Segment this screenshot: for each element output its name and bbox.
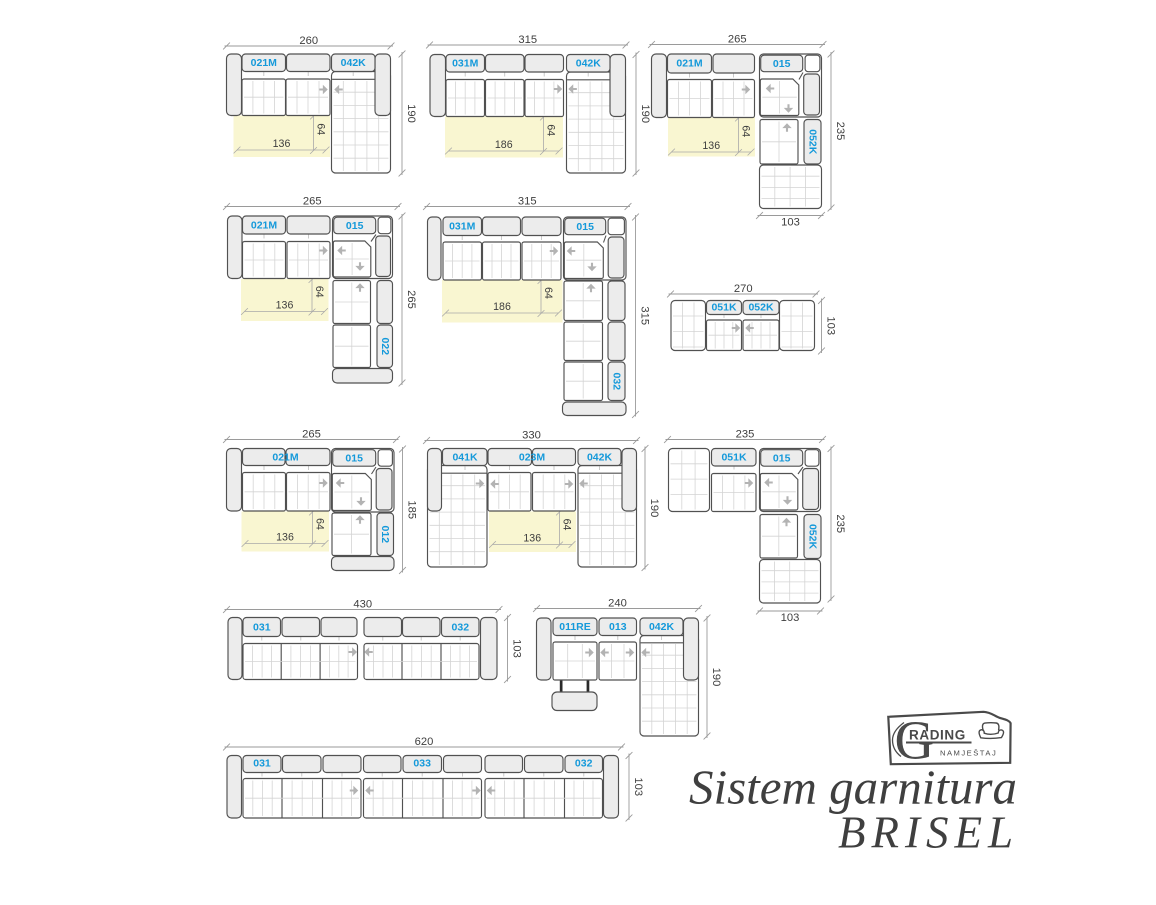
svg-text:051K: 051K	[721, 452, 747, 464]
svg-text:64: 64	[313, 286, 325, 298]
svg-text:103: 103	[632, 777, 644, 796]
svg-text:042K: 042K	[341, 57, 367, 69]
svg-text:052K: 052K	[748, 302, 774, 314]
svg-text:032: 032	[452, 621, 470, 633]
svg-text:015: 015	[773, 58, 791, 70]
svg-text:330: 330	[522, 430, 541, 442]
svg-text:103: 103	[781, 612, 800, 624]
svg-text:64: 64	[542, 287, 554, 299]
svg-text:015: 015	[773, 452, 791, 464]
svg-text:64: 64	[740, 125, 752, 137]
svg-text:042K: 042K	[587, 452, 613, 464]
svg-text:042K: 042K	[576, 58, 602, 70]
svg-text:136: 136	[276, 300, 294, 312]
svg-text:015: 015	[576, 221, 594, 233]
svg-text:051K: 051K	[711, 302, 737, 314]
svg-text:235: 235	[736, 429, 755, 441]
svg-text:031M: 031M	[449, 221, 476, 233]
svg-text:430: 430	[353, 599, 372, 611]
svg-text:052K: 052K	[807, 129, 819, 155]
svg-text:620: 620	[415, 736, 434, 748]
svg-text:021M: 021M	[251, 220, 278, 232]
svg-text:032: 032	[575, 758, 593, 770]
svg-text:64: 64	[561, 519, 573, 531]
svg-text:190: 190	[648, 499, 660, 518]
svg-text:190: 190	[710, 668, 722, 687]
svg-text:315: 315	[639, 306, 651, 325]
svg-text:015: 015	[346, 220, 364, 232]
svg-text:042K: 042K	[649, 621, 675, 633]
svg-text:64: 64	[545, 124, 557, 136]
svg-text:64: 64	[315, 123, 327, 135]
svg-text:103: 103	[781, 217, 800, 229]
svg-text:021M: 021M	[272, 452, 299, 464]
svg-text:136: 136	[702, 140, 720, 152]
svg-text:021M: 021M	[251, 57, 278, 69]
svg-text:RADING: RADING	[909, 728, 966, 743]
svg-text:015: 015	[345, 452, 363, 464]
svg-text:103: 103	[825, 316, 837, 335]
svg-text:136: 136	[523, 533, 541, 545]
svg-text:265: 265	[303, 196, 322, 208]
svg-text:315: 315	[518, 34, 537, 46]
svg-text:023M: 023M	[519, 452, 546, 464]
svg-text:BRISEL: BRISEL	[838, 808, 1019, 858]
svg-text:Sistem garnitura: Sistem garnitura	[689, 760, 1017, 815]
svg-text:NAMJEŠTAJ: NAMJEŠTAJ	[940, 749, 997, 758]
svg-text:031M: 031M	[452, 58, 479, 70]
svg-text:022: 022	[379, 338, 391, 356]
svg-text:013: 013	[609, 621, 627, 633]
svg-text:052K: 052K	[807, 524, 819, 550]
svg-text:235: 235	[834, 122, 846, 141]
svg-text:031: 031	[253, 758, 271, 770]
svg-text:031: 031	[253, 621, 271, 633]
svg-text:190: 190	[405, 104, 417, 123]
svg-text:265: 265	[302, 429, 321, 441]
svg-text:103: 103	[511, 639, 523, 658]
svg-text:041K: 041K	[452, 452, 478, 464]
svg-text:315: 315	[518, 196, 537, 208]
svg-text:136: 136	[273, 138, 291, 150]
svg-text:011RE: 011RE	[559, 621, 591, 633]
svg-text:136: 136	[276, 532, 294, 544]
svg-text:185: 185	[406, 500, 418, 519]
svg-text:032: 032	[611, 373, 623, 391]
svg-text:021M: 021M	[676, 58, 703, 70]
svg-text:240: 240	[608, 598, 627, 610]
svg-text:265: 265	[728, 34, 747, 46]
svg-text:64: 64	[314, 518, 326, 530]
svg-text:260: 260	[299, 35, 318, 47]
svg-text:186: 186	[493, 301, 511, 313]
svg-text:270: 270	[734, 283, 753, 295]
svg-text:012: 012	[379, 526, 391, 544]
svg-text:186: 186	[495, 139, 513, 151]
svg-text:235: 235	[834, 514, 846, 533]
svg-text:265: 265	[405, 290, 417, 309]
svg-text:190: 190	[639, 104, 651, 123]
svg-text:033: 033	[413, 758, 431, 770]
